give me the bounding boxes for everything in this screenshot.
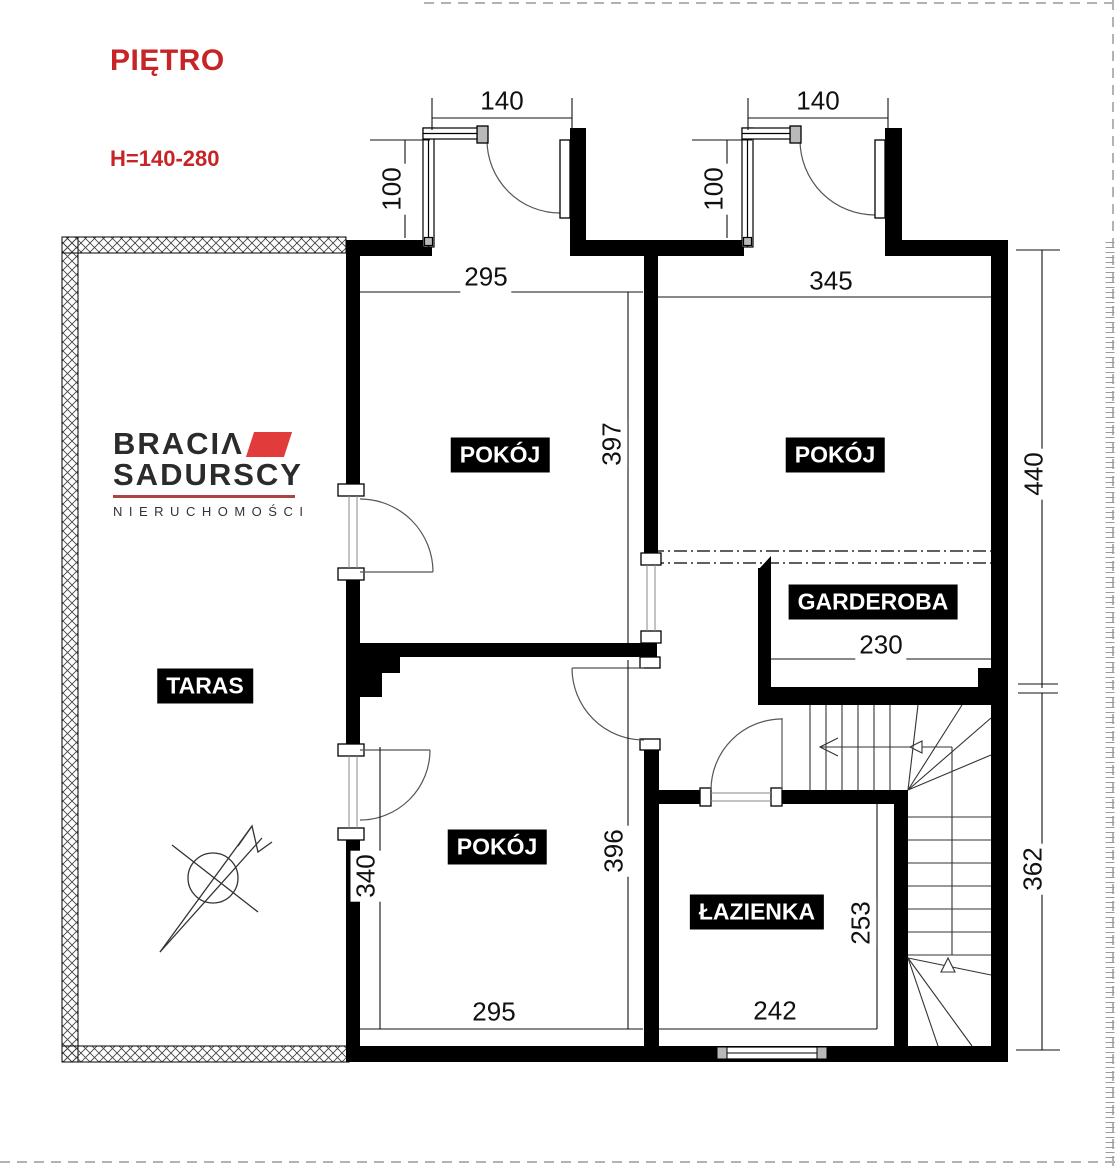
dim-balcony-left-width: 140 (476, 86, 527, 117)
logo-rule (113, 495, 295, 498)
section-lines (651, 551, 991, 563)
room-label-pokoj-bottom: POKÓJ (448, 830, 547, 865)
dim-lazienka-width: 242 (749, 996, 800, 1027)
dim-lazienka-height: 253 (846, 897, 877, 948)
door-jambs (338, 484, 782, 840)
dim-pokoj-bottom-width: 295 (468, 997, 519, 1028)
dim-right-side-upper-height: 440 (1019, 448, 1050, 499)
balcony-railings (423, 128, 790, 247)
dim-pokoj-top-right-width: 345 (805, 266, 856, 297)
agency-logo: BRACIΛ SADURSCY NIERUCHOMOŚCI (113, 428, 313, 519)
north-arrow-icon (160, 826, 272, 952)
logo-brand-top: BRACIΛ (113, 428, 244, 459)
dim-pokoj-top-left-height: 397 (597, 418, 628, 469)
dim-balcony-right-width: 140 (792, 86, 843, 117)
opening-lines (349, 496, 771, 828)
dim-pokoj-bottom-height: 396 (599, 825, 630, 876)
room-label-pokoj-top-left: POKÓJ (451, 438, 550, 473)
logo-tagline: NIERUCHOMOŚCI (113, 504, 313, 519)
dim-right-side-lower-height: 362 (1018, 843, 1049, 894)
dim-pokoj-top-left-width: 295 (460, 262, 511, 293)
logo-brand-bottom: SADURSCY (113, 459, 313, 490)
logo-red-mark-icon (246, 432, 292, 457)
neighbor-wall-hatch (1104, 240, 1117, 1158)
room-label-garderoba: GARDEROBA (789, 585, 958, 620)
dim-pokoj-bottom-left-height: 340 (351, 850, 382, 901)
room-label-taras: TARAS (157, 669, 253, 704)
balcony-door-leaves (477, 126, 885, 218)
dim-balcony-left-depth: 100 (377, 163, 408, 214)
page-title: PIĘTRO (110, 44, 225, 78)
room-label-pokoj-top-right: POKÓJ (786, 438, 885, 473)
terrace-hatch-border (62, 237, 349, 1062)
ceiling-height-note: H=140-280 (110, 146, 219, 172)
dim-garderoba-width: 230 (855, 630, 906, 661)
dim-balcony-right-depth: 100 (699, 163, 730, 214)
bathroom-window (717, 1047, 827, 1059)
room-label-lazienka: ŁAZIENKA (690, 895, 824, 930)
floorplan-page: PIĘTRO H=140-280 BRACIΛ SADURSCY NIERUCH… (0, 0, 1117, 1168)
